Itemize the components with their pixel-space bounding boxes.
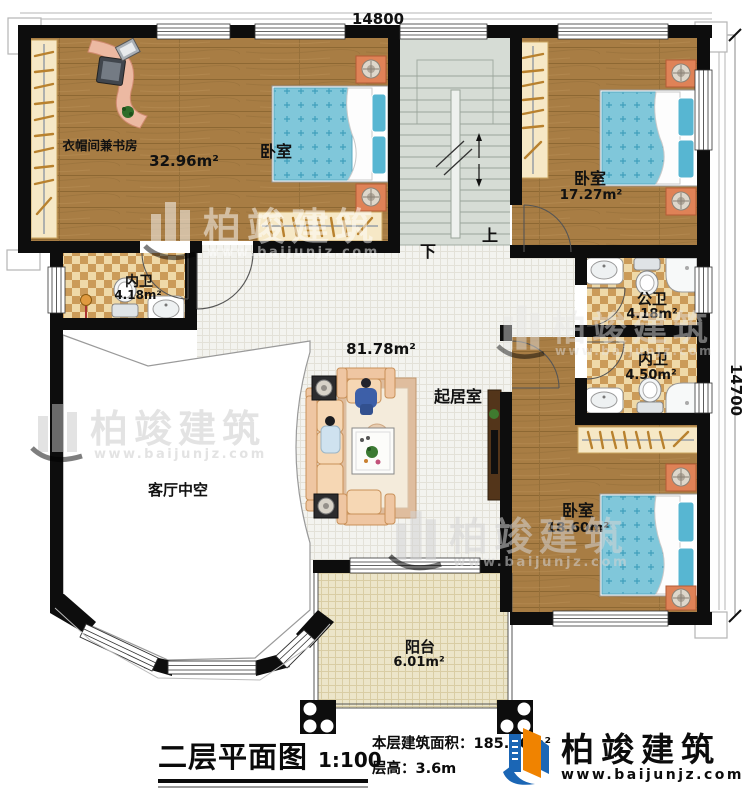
balcony-label: 阳台 [405, 638, 435, 656]
stairs-down-label: 下 [420, 242, 436, 261]
living-label: 起居室 [433, 387, 482, 406]
bath-right-area: 4.50m² [625, 368, 676, 383]
bedroom2-label: 卧室 [574, 169, 606, 188]
desk-plant-icon [122, 106, 134, 118]
void-label: 客厅中空 [147, 481, 208, 499]
floor-plan-page: 柏竣建筑 www.baijunjz.com 14800 14700 [0, 0, 750, 794]
bath-top-area: 4.18m² [114, 288, 161, 302]
computer-monitor-icon [96, 56, 125, 85]
bedroom2-area: 17.27m² [560, 187, 623, 203]
bedroom1-label: 卧室 [260, 142, 292, 161]
bedroom2-wardrobe [518, 42, 548, 178]
plan-title: 二层平面图 [158, 734, 308, 776]
bedroom2-bed [600, 90, 698, 186]
bedroom3-wardrobe [578, 427, 698, 453]
floor-height-value: 3.6m [416, 761, 457, 777]
tv-cabinet [488, 390, 501, 500]
balcony-area: 6.01m² [393, 655, 444, 670]
floor-area-label: 本层建筑面积： [372, 736, 474, 752]
study-area: 32.96m² [149, 152, 219, 170]
dimension-right-label: 14700 [727, 364, 745, 416]
brand-name: 柏竣建筑 [561, 733, 721, 768]
bedroom1-bed [272, 86, 388, 182]
brand-logo-icon [495, 726, 553, 790]
floor-height-label: 层高： [372, 761, 416, 777]
brand-logo: 柏竣建筑 www.baijunjz.com [495, 726, 744, 790]
coffee-table [352, 428, 394, 474]
title-underline [158, 779, 368, 783]
brand-url: www.baijunjz.com [561, 767, 744, 783]
study-label: 衣帽间兼书房 [62, 138, 137, 153]
stairs-up-label: 上 [482, 226, 498, 245]
floor-plan-drawing: 柏竣建筑 www.baijunjz.com 14800 14700 [0, 0, 750, 740]
title-underline-2 [158, 786, 368, 788]
title-block: 二层平面图 1:100 本层建筑面积：185.86m² 层高：3.6m 柏竣建筑… [0, 726, 750, 794]
living-area: 81.78m² [346, 340, 416, 358]
public-bath-label: 公卫 [637, 290, 667, 308]
plan-title-block: 二层平面图 1:100 [158, 734, 368, 788]
study-wardrobe [31, 40, 57, 238]
